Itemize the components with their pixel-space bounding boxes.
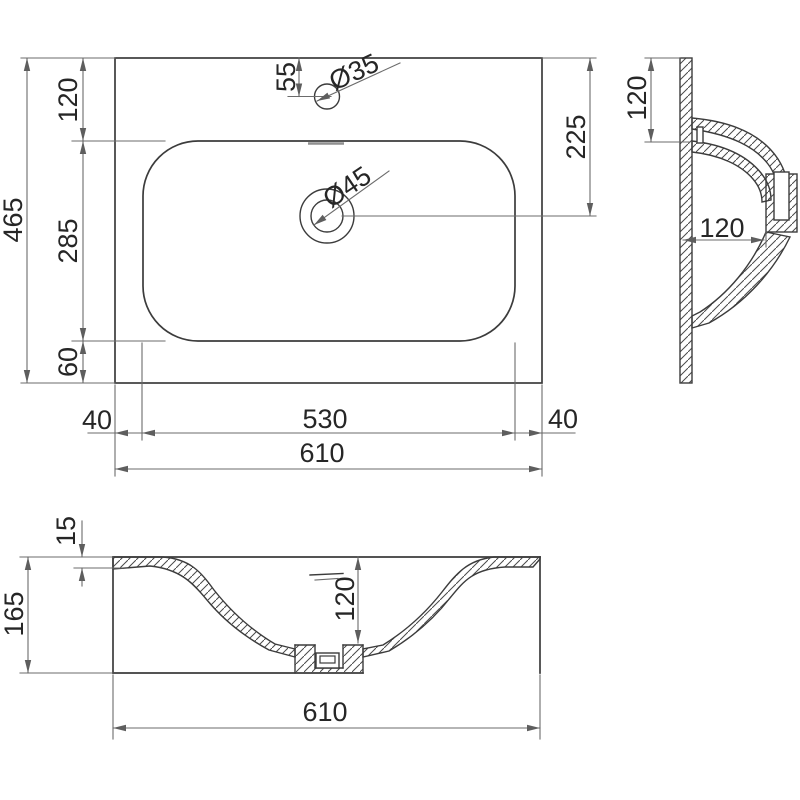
- dim-overall-depth: 465: [0, 197, 28, 242]
- top-view-outer-outline: [115, 58, 542, 383]
- top-view: [115, 58, 542, 383]
- dim-rear-offset: 120: [53, 77, 83, 122]
- drawing-canvas: 465 120 285 60 55 Ø35 Ø45 225 40 530 40 …: [0, 0, 800, 800]
- dim-side-bowl-depth: 120: [699, 213, 744, 243]
- dim-overall-width-top: 610: [299, 438, 344, 468]
- dim-overall-height: 165: [0, 591, 29, 636]
- dimension-arrows: [24, 58, 764, 731]
- dim-front-bowl-depth: 120: [330, 576, 360, 621]
- dim-right-margin: 40: [548, 404, 578, 434]
- side-back-wall-section: [680, 58, 692, 383]
- front-right-bowl-band-section: [363, 557, 540, 657]
- dim-rim-thickness: 15: [51, 516, 81, 546]
- side-overflow-channel-notch: [697, 127, 703, 143]
- dim-left-margin: 40: [82, 405, 112, 435]
- overflow-slot-front-view: [310, 574, 343, 576]
- front-section-view: [113, 557, 540, 673]
- top-view-basin-outline: [143, 141, 515, 341]
- front-left-bowl-band-section: [113, 557, 295, 657]
- dimension-lines: [20, 58, 766, 739]
- side-drain-bore: [774, 172, 789, 220]
- dim-front-offset: 60: [53, 347, 83, 377]
- dim-faucet-setback: 55: [271, 62, 301, 92]
- side-bowl-lower-band-section: [692, 232, 790, 328]
- dim-side-rim-depth: 120: [622, 75, 652, 120]
- dim-drain-setback: 225: [561, 114, 591, 159]
- dim-basin-depth: 285: [53, 218, 83, 263]
- dim-basin-width: 530: [302, 404, 347, 434]
- dim-overall-width-front: 610: [302, 697, 347, 727]
- dimension-labels: 465 120 285 60 55 Ø35 Ø45 225 40 530 40 …: [0, 48, 745, 727]
- dim-drain-hole-dia: Ø45: [317, 160, 376, 213]
- dim-faucet-hole-dia: Ø35: [325, 48, 384, 97]
